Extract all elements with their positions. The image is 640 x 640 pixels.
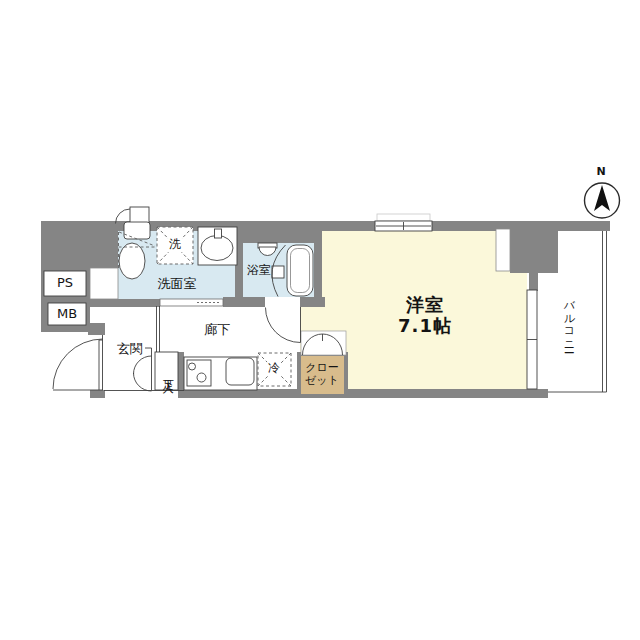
compass-icon — [585, 183, 620, 218]
label-north: N — [596, 166, 605, 179]
label-bathroom: 浴室 — [247, 264, 271, 278]
bathtub-icon — [287, 245, 313, 296]
entrance-door-arc — [53, 339, 103, 389]
label-corridor: 廊下 — [204, 323, 230, 338]
kitchen-icon — [184, 357, 257, 390]
label-washroom: 洗面室 — [158, 277, 197, 292]
label-balcony: バルコニー — [562, 293, 575, 348]
label-main-room: 洋室 7.1帖 — [398, 295, 452, 336]
vanity-basin-icon — [198, 227, 237, 265]
toilet-door-leaf — [130, 207, 149, 223]
label-pipe-space: PS — [57, 276, 73, 291]
room-door-arc — [266, 308, 301, 343]
label-washer: 洗 — [168, 238, 182, 252]
hall-partition — [157, 306, 160, 352]
label-entrance: 玄関 — [117, 342, 143, 357]
floor-plan-drawing — [0, 0, 640, 640]
label-meter-box: MB — [57, 307, 77, 322]
floor-plan: PS MB 洗面室 洗 浴室 玄関 下足入 廊下 冷 クロー ゼット 洋室 7.… — [0, 0, 640, 640]
entrance-step — [145, 348, 152, 390]
kitchen-sink-icon — [226, 358, 254, 385]
label-refrigerator: 冷 — [267, 362, 281, 376]
label-shoe-cabinet: 下足入 — [161, 371, 174, 374]
shoe-cabinet-door-arcs — [134, 356, 152, 391]
balcony-floor — [558, 231, 604, 273]
alcove — [496, 229, 510, 271]
label-closet: クロー ゼット — [305, 362, 339, 387]
bath-panel-icon — [272, 266, 284, 278]
